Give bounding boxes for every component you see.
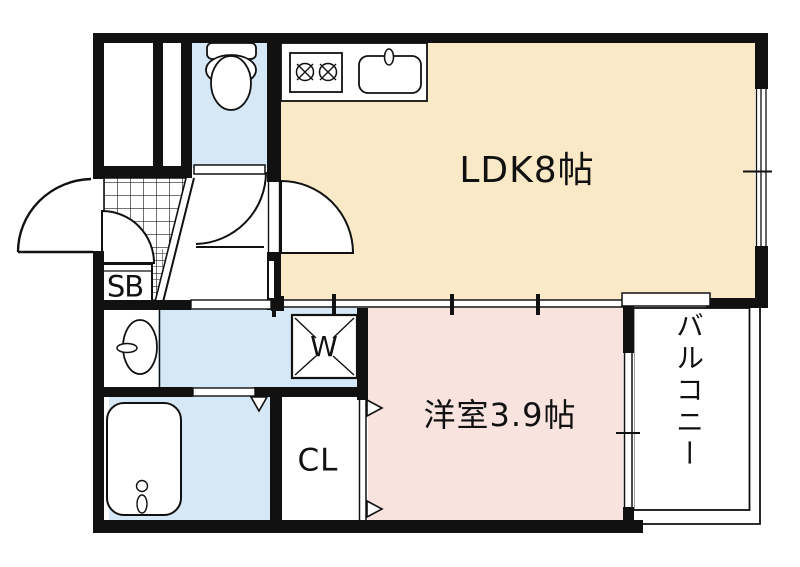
washer-label: W [310, 333, 338, 361]
wall-pocket-slot [269, 261, 274, 298]
toilet-door [194, 165, 266, 247]
kitchen-sink-icon [359, 49, 421, 93]
stove-icon [290, 53, 342, 92]
closet-label: CL [298, 446, 339, 477]
entrance-door [18, 179, 93, 252]
floor-plan: LDK8帖 洋室3.9帖 バルコニー SB W CL [0, 0, 800, 567]
ldk-label: LDK8帖 [459, 153, 594, 189]
washbasin-icon [117, 310, 160, 387]
bathtub-icon [107, 403, 181, 515]
western-room-label: 洋室3.9帖 [424, 399, 577, 431]
balcony-window-sill [622, 293, 710, 306]
kitchen-counter [281, 43, 427, 101]
shoe-box-label: SB [107, 273, 143, 302]
balcony-label: バルコニー [674, 311, 702, 471]
